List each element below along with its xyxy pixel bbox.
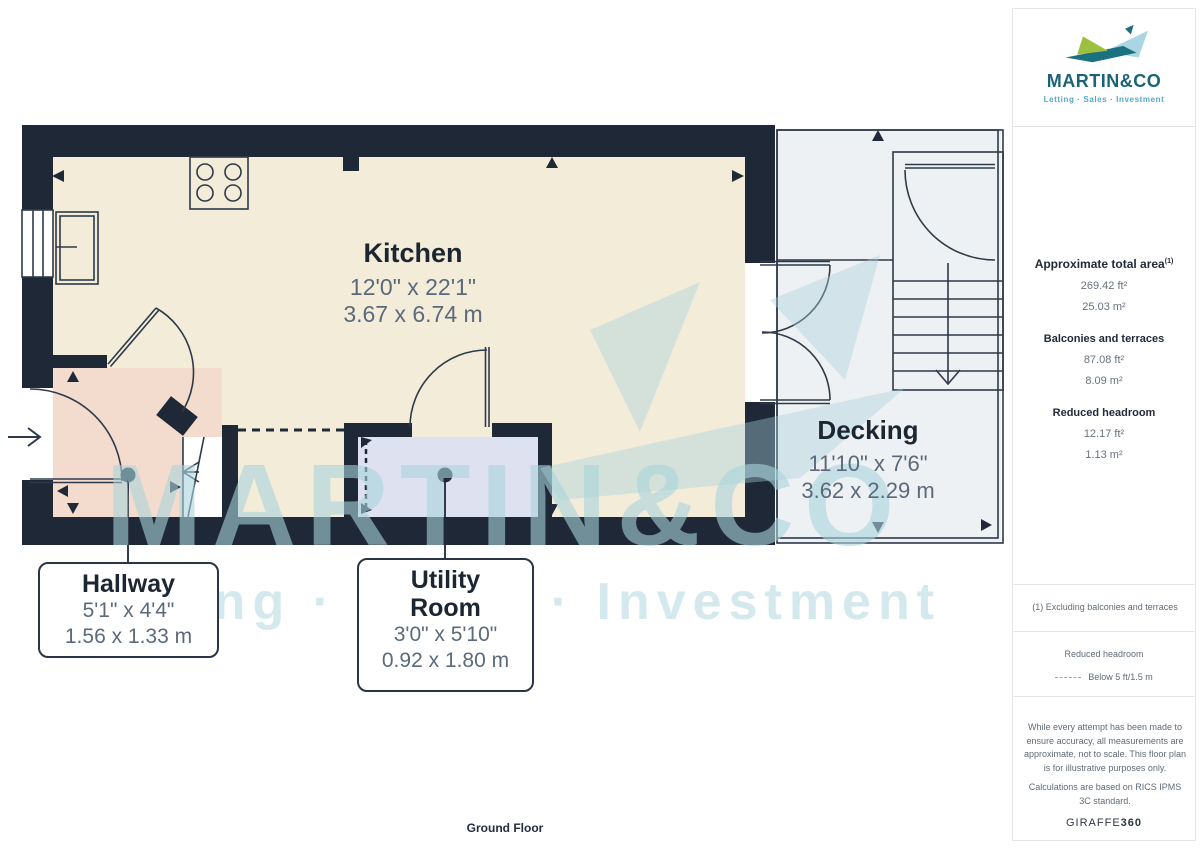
wall-stair-right [222, 425, 238, 517]
divider-2 [1013, 584, 1195, 585]
balconies-ft: 87.08 ft² [1013, 354, 1195, 366]
giraffe-suffix: 360 [1121, 817, 1142, 829]
balconies-m: 8.09 m² [1013, 375, 1195, 387]
disclaimer-1: While every attempt has been made to ens… [1022, 721, 1188, 775]
info-sidebar: MARTIN&CO Letting · Sales · Investment A… [1012, 8, 1196, 841]
wall-hall-divider [53, 355, 107, 368]
dashed-line-icon [1055, 677, 1081, 678]
legend-title: Reduced headroom [1013, 649, 1195, 659]
divider-3 [1013, 631, 1195, 632]
giraffe-name: GIRAFFE [1066, 817, 1121, 829]
divider-1 [1013, 126, 1195, 127]
hallway-name: Hallway [40, 570, 217, 598]
wall-stub-top [343, 157, 359, 171]
brand-name: MARTIN&CO [1013, 71, 1195, 92]
utility-callout: Utility Room 3'0" x 5'10" 0.92 x 1.80 m [357, 558, 534, 692]
kitchen-label: Kitchen 12'0" x 22'1" 3.67 x 6.74 m [298, 238, 528, 328]
wall-utility-top-left [344, 423, 412, 437]
floorplan: MARTIN&CO Letting · Sales · Investment K… [0, 0, 1010, 849]
brand-bird-icon [1056, 23, 1152, 69]
kitchen-dim-metric: 3.67 x 6.74 m [298, 301, 528, 328]
kitchen-dim-imperial: 12'0" x 22'1" [298, 274, 528, 301]
decking-dim-metric: 3.62 x 2.29 m [758, 477, 978, 504]
wall-right-a [745, 157, 775, 263]
wall-left-b [22, 277, 53, 388]
hall-stairs-area [183, 437, 222, 517]
utility-dim-metric: 0.92 x 1.80 m [359, 648, 532, 674]
wall-utility-left [344, 437, 358, 517]
hallway-callout: Hallway 5'1" x 4'4" 1.56 x 1.33 m [38, 562, 219, 658]
wall-bottom [22, 517, 775, 545]
wall-top [22, 125, 775, 157]
total-area-footnote: (1) [1165, 258, 1174, 265]
wall-utility-top-right [492, 423, 552, 437]
utility-dim-imperial: 3'0" x 5'10" [359, 622, 532, 648]
kitchen-name: Kitchen [298, 238, 528, 268]
total-area-m: 25.03 m² [1013, 301, 1195, 313]
legend-row: Below 5 ft/1.5 m [1013, 672, 1195, 682]
reduced-m: 1.13 m² [1013, 449, 1195, 461]
wall-utility-right [538, 437, 552, 517]
total-area-ft: 269.42 ft² [1013, 280, 1195, 292]
brand-logo: MARTIN&CO Letting · Sales · Investment [1013, 23, 1195, 104]
giraffe360-logo: GIRAFFE360 [1013, 817, 1195, 829]
hallway-dim-metric: 1.56 x 1.33 m [40, 624, 217, 650]
balconies-label: Balconies and terraces [1013, 333, 1195, 345]
utility-floor [358, 437, 538, 517]
wall-left-a [22, 157, 53, 210]
utility-name: Utility Room [391, 566, 501, 622]
total-area-label: Approximate total area(1) [1013, 257, 1195, 271]
disclaimer-2: Calculations are based on RICS IPMS 3C s… [1022, 781, 1188, 808]
brand-tagline: Letting · Sales · Investment [1013, 95, 1195, 104]
hallway-dim-imperial: 5'1" x 4'4" [40, 598, 217, 624]
decking-name: Decking [758, 415, 978, 445]
reduced-ft: 12.17 ft² [1013, 428, 1195, 440]
floor-label: Ground Floor [0, 821, 1010, 835]
legend-item: Below 5 ft/1.5 m [1088, 672, 1153, 682]
area-summary: Approximate total area(1) 269.42 ft² 25.… [1013, 257, 1195, 461]
footnote-text: (1) Excluding balconies and terraces [1023, 601, 1187, 613]
divider-4 [1013, 696, 1195, 697]
decking-dim-imperial: 11'10" x 7'6" [758, 450, 978, 477]
wall-left-c [22, 480, 53, 517]
decking-label: Decking 11'10" x 7'6" 3.62 x 2.29 m [758, 415, 978, 504]
reduced-label: Reduced headroom [1013, 407, 1195, 419]
